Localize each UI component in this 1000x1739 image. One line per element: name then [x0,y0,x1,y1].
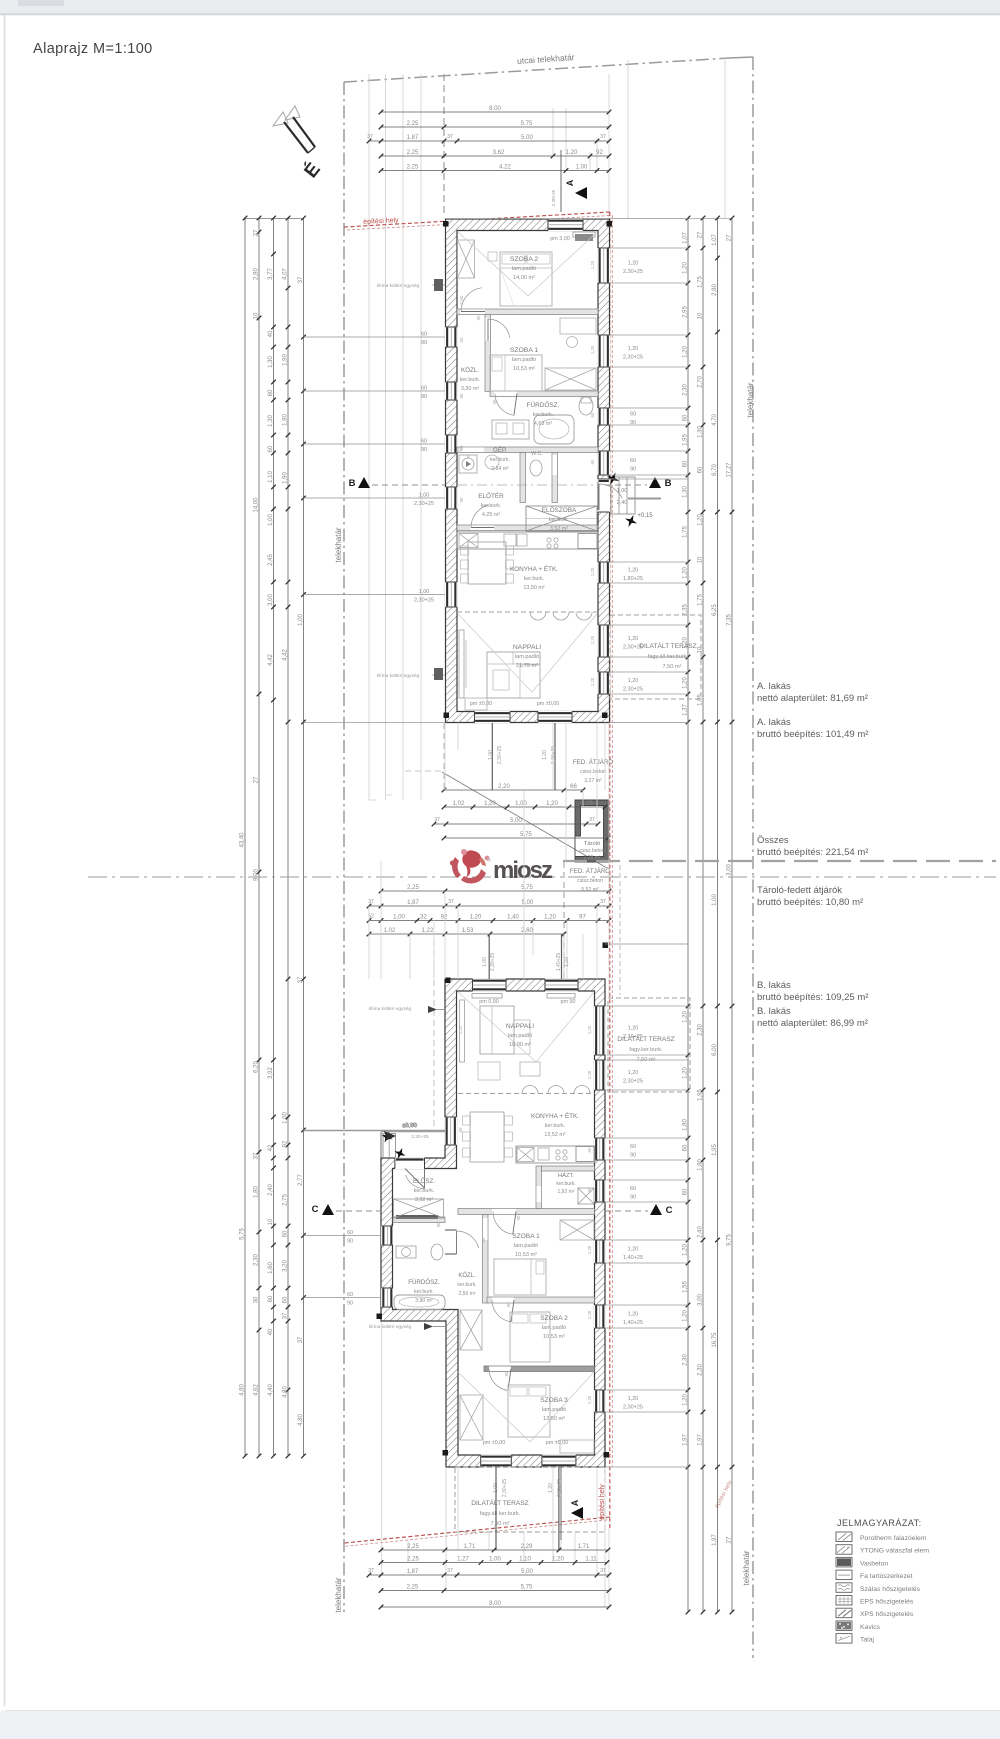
svg-text:1,20: 1,20 [628,1070,639,1076]
svg-text:2,30+25: 2,30+25 [623,355,643,361]
svg-text:90: 90 [516,1215,521,1220]
svg-text:37: 37 [600,134,606,140]
svg-text:3,20: 3,20 [283,1260,289,1272]
svg-text:92: 92 [441,915,448,921]
svg-text:A. lakás: A. lakás [757,681,791,692]
svg-text:klíma kültéri egység: klíma kültéri egység [369,1006,412,1012]
svg-text:2,30+25: 2,30+25 [623,1034,643,1040]
svg-text:2,60: 2,60 [521,928,533,934]
svg-text:Alaprajz M=1:100: Alaprajz M=1:100 [33,41,153,57]
svg-text:nettó alapterület: 86,99 m²: nettó alapterület: 86,99 m² [757,1018,868,1029]
svg-text:1,20: 1,20 [590,260,595,269]
svg-text:90: 90 [421,447,427,453]
svg-text:2,30+25: 2,30+25 [551,746,557,764]
svg-text:10: 10 [268,1218,274,1225]
svg-text:lam.padló: lam.padló [512,357,536,363]
svg-text:2,30+25: 2,30+25 [623,269,643,275]
svg-text:60: 60 [283,1230,289,1237]
svg-text:90: 90 [347,1239,353,1245]
svg-text:®: ® [487,857,491,864]
svg-text:1,00: 1,00 [393,915,405,921]
svg-text:2,29: 2,29 [521,1544,533,1550]
svg-text:1,30: 1,30 [268,415,274,427]
svg-text:37: 37 [298,276,304,283]
svg-text:2,30: 2,30 [698,1364,704,1376]
svg-text:lam.padló: lam.padló [542,1325,566,1331]
svg-text:7,50 m²: 7,50 m² [491,1521,510,1527]
svg-text:27: 27 [698,231,704,238]
svg-text:4,80: 4,80 [240,1384,246,1396]
svg-text:5,75: 5,75 [520,832,532,838]
svg-text:1,20: 1,20 [683,1244,689,1256]
svg-text:Vasbeton: Vasbeton [860,1560,888,1567]
svg-text:1,20: 1,20 [628,261,639,267]
svg-text:2.25: 2.25 [407,150,419,156]
svg-text:10: 10 [698,556,704,563]
svg-text:SZOBA 1: SZOBA 1 [510,347,539,354]
svg-text:1,20: 1,20 [544,915,556,921]
svg-text:1,20: 1,20 [587,1395,592,1404]
svg-text:1,10: 1,10 [268,471,274,483]
svg-text:1,71: 1,71 [578,1544,590,1550]
svg-text:5.75: 5.75 [521,121,533,127]
svg-text:1,20: 1,20 [564,957,570,967]
svg-text:37: 37 [600,899,606,905]
svg-text:4,70: 4,70 [712,414,718,426]
svg-text:37: 37 [283,1312,289,1319]
svg-text:1,20: 1,20 [628,1247,639,1253]
svg-text:60: 60 [683,1188,689,1195]
svg-text:lam.padló: lam.padló [514,1243,538,1249]
svg-text:ker.burk.: ker.burk. [460,377,481,383]
svg-text:60: 60 [268,1295,274,1302]
svg-text:37: 37 [447,134,453,140]
svg-text:14,00 m²: 14,00 m² [513,275,535,281]
svg-text:1,20: 1,20 [590,567,595,576]
svg-text:60: 60 [347,1292,353,1298]
svg-text:DILATÁLT TERASZ: DILATÁLT TERASZ [471,1498,528,1507]
svg-text:18,00 m²: 18,00 m² [509,1042,531,1048]
svg-text:1,20: 1,20 [628,1026,639,1032]
svg-text:60: 60 [630,412,636,418]
svg-text:2,30+25: 2,30+25 [502,1479,508,1497]
svg-text:60: 60 [268,445,274,452]
svg-text:1,00: 1,00 [488,750,494,760]
svg-text:1,75: 1,75 [683,526,689,538]
svg-text:7,35: 7,35 [727,614,733,626]
svg-text:FED. ÁTJÁRÓ: FED. ÁTJÁRÓ [573,759,613,766]
svg-text:1,20: 1,20 [587,1310,592,1319]
svg-text:KONYHA + ÉTK.: KONYHA + ÉTK. [531,1111,579,1120]
svg-text:1,20: 1,20 [470,915,482,921]
svg-text:C: C [666,1205,673,1216]
svg-text:2.25: 2.25 [407,165,419,171]
svg-text:1,30: 1,30 [683,486,689,498]
svg-text:4,42: 4,42 [283,649,289,661]
svg-text:60: 60 [283,1296,289,1303]
svg-text:B: B [665,478,672,489]
svg-text:telekhatár: telekhatár [746,382,755,417]
svg-text:27: 27 [727,1536,733,1543]
svg-text:Szálas hőszigetelés: Szálas hőszigetelés [860,1586,921,1593]
svg-text:W.C.: W.C. [531,451,543,457]
svg-text:4,80: 4,80 [298,1414,304,1426]
svg-text:miosz: miosz [493,857,553,884]
svg-text:1,95: 1,95 [683,434,689,446]
svg-text:1,80: 1,80 [254,1186,260,1198]
svg-text:pm 0,90: pm 0,90 [479,999,498,1005]
svg-text:60: 60 [268,389,274,396]
svg-text:1,00: 1,00 [489,1557,501,1563]
svg-text:1,07: 1,07 [683,232,689,244]
svg-text:1,40+25: 1,40+25 [556,953,562,971]
svg-text:1,95: 1,95 [712,1144,718,1156]
svg-text:13,50 m²: 13,50 m² [543,1416,565,1422]
svg-text:2,40: 2,40 [268,1184,274,1196]
svg-text:32: 32 [420,915,427,921]
svg-text:ker.burk.: ker.burk. [414,1188,435,1194]
svg-text:Talaj: Talaj [860,1637,874,1644]
svg-text:pm 3,00: pm 3,00 [550,236,569,242]
svg-text:1,20: 1,20 [628,568,639,574]
svg-text:1,00: 1,00 [268,514,274,526]
svg-text:60: 60 [590,459,595,464]
svg-text:6,25: 6,25 [712,604,718,616]
svg-text:2,30+25: 2,30+25 [623,1405,643,1411]
svg-text:KONYHA + ÉTK.: KONYHA + ÉTK. [510,564,558,573]
svg-text:2,30+25: 2,30+25 [623,1079,643,1085]
svg-text:B. lakás: B. lakás [757,1006,791,1017]
svg-text:KÖZL.: KÖZL. [458,1272,476,1279]
svg-text:21,75 m²: 21,75 m² [516,663,538,669]
svg-text:40: 40 [268,330,274,337]
svg-text:Porotherm falazóelem: Porotherm falazóelem [860,1535,927,1542]
svg-text:90: 90 [481,1237,486,1242]
svg-text:nettó alapterület: 81,69 m²: nettó alapterület: 81,69 m² [757,693,868,704]
svg-text:lam.padló: lam.padló [512,266,536,272]
svg-text:5,00: 5,00 [510,818,522,824]
svg-text:A. lakás: A. lakás [757,717,791,728]
svg-text:5,75: 5,75 [521,885,533,891]
svg-text:60: 60 [421,332,427,338]
svg-text:Tároló-fedett átjárók: Tároló-fedett átjárók [757,885,842,896]
svg-text:2,30: 2,30 [698,1024,704,1036]
svg-text:1,02: 1,02 [453,801,465,807]
svg-text:1.00: 1.00 [576,165,588,171]
svg-text:9,75: 9,75 [727,1234,733,1246]
svg-text:klíma kültéri egység: klíma kültéri egység [377,283,420,289]
svg-text:5,00: 5,00 [522,900,534,906]
svg-text:1,00: 1,00 [482,957,488,967]
svg-text:10,53 m²: 10,53 m² [543,1334,565,1340]
svg-text:ELŐSZOBA: ELŐSZOBA [542,505,577,514]
svg-text:1,60: 1,60 [268,1262,274,1274]
svg-text:2,30: 2,30 [683,1354,689,1366]
svg-text:1,30: 1,30 [698,426,704,438]
svg-text:2,30+25: 2,30+25 [414,501,434,507]
svg-text:2,40: 2,40 [617,500,628,506]
svg-text:37: 37 [368,1568,374,1574]
svg-text:2,30+25: 2,30+25 [414,598,434,604]
svg-text:60: 60 [630,458,636,464]
svg-text:90: 90 [492,399,497,404]
svg-text:3.62: 3.62 [493,150,505,156]
svg-text:1,92 m²: 1,92 m² [558,1189,575,1195]
svg-text:1,87: 1,87 [407,900,419,906]
svg-text:1,00: 1,00 [515,801,527,807]
svg-text:37: 37 [298,976,304,983]
svg-text:1,00: 1,00 [617,488,628,494]
svg-text:1,71: 1,71 [464,1544,476,1550]
svg-text:10,53 m²: 10,53 m² [513,366,535,372]
svg-text:1,20: 1,20 [628,346,639,352]
svg-text:A: A [570,1499,580,1506]
svg-text:1,20: 1,20 [542,750,548,760]
svg-text:2,50 m²: 2,50 m² [459,1291,476,1297]
svg-text:3,30 m²: 3,30 m² [461,386,479,392]
svg-text:90: 90 [458,1127,463,1132]
svg-text:NAPPALI: NAPPALI [513,644,541,651]
svg-text:3,27 m²: 3,27 m² [584,778,602,784]
svg-text:1,27: 1,27 [457,1557,469,1563]
svg-text:90: 90 [630,1195,636,1201]
svg-text:60: 60 [630,1144,636,1150]
svg-text:90: 90 [459,393,464,398]
svg-text:YTONG válaszfal elem: YTONG válaszfal elem [860,1548,929,1555]
svg-text:13,50 m²: 13,50 m² [523,585,544,591]
svg-text:90: 90 [630,1153,636,1159]
svg-text:1,20: 1,20 [590,677,595,686]
svg-text:ker.burk.: ker.burk. [524,576,545,582]
svg-text:1,20: 1,20 [683,1011,689,1023]
svg-text:ELŐSZ.: ELŐSZ. [413,1178,435,1185]
svg-text:6,70: 6,70 [712,464,718,476]
svg-text:4,42: 4,42 [268,654,274,666]
svg-text:5,00: 5,00 [521,1569,533,1575]
svg-text:3,92: 3,92 [268,1067,274,1079]
svg-text:1,40: 1,40 [507,915,519,921]
svg-text:60: 60 [590,412,595,417]
svg-text:1,55: 1,55 [683,1281,689,1293]
svg-text:60: 60 [683,460,689,467]
svg-text:60: 60 [698,466,704,473]
svg-text:90: 90 [504,1371,509,1376]
svg-text:1,10: 1,10 [519,1557,531,1563]
svg-text:1,20: 1,20 [587,1245,592,1254]
svg-text:2,75: 2,75 [283,1194,289,1206]
svg-text:lam.padló: lam.padló [515,654,539,660]
svg-text:3,77: 3,77 [268,268,274,280]
svg-text:4,63 m²: 4,63 m² [534,421,552,427]
svg-text:1,20: 1,20 [484,801,496,807]
svg-text:60: 60 [630,1186,636,1192]
svg-text:1,20: 1,20 [458,1025,463,1034]
svg-text:ker.burk.: ker.burk. [457,1282,476,1288]
svg-text:1,80: 1,80 [698,1159,704,1171]
svg-text:FÜRDŐSZ.: FÜRDŐSZ. [408,1279,440,1286]
svg-text:1,00: 1,00 [419,493,430,499]
svg-text:ker.burk.: ker.burk. [556,1181,575,1187]
svg-text:30: 30 [254,1296,260,1303]
svg-text:1,20: 1,20 [628,678,639,684]
svg-text:90: 90 [630,420,636,426]
svg-text:5.00: 5.00 [521,135,533,141]
svg-text:ker.burk.: ker.burk. [533,412,554,418]
svg-text:2,95: 2,95 [683,306,689,318]
svg-text:4,40: 4,40 [268,1384,274,1396]
svg-text:FÜRDŐSZ.: FÜRDŐSZ. [527,400,560,409]
svg-text:60: 60 [347,1230,353,1236]
svg-text:2,25: 2,25 [407,1544,419,1550]
svg-text:1,75: 1,75 [698,594,704,606]
svg-text:27: 27 [254,776,260,783]
svg-text:1,20: 1,20 [587,1025,592,1034]
svg-text:1,20: 1,20 [546,801,558,807]
svg-text:SZOBA 3: SZOBA 3 [540,1397,568,1404]
svg-text:A: A [565,179,575,186]
svg-text:ker.burk.: ker.burk. [545,1123,566,1129]
svg-text:2,30: 2,30 [254,1254,260,1266]
svg-text:60: 60 [459,337,464,342]
svg-text:90: 90 [476,315,481,320]
svg-text:telekhatár: telekhatár [742,1550,751,1585]
svg-text:1,87: 1,87 [407,1569,419,1575]
svg-text:1,40+25: 1,40+25 [623,1320,643,1326]
svg-text:Összes: Összes [757,835,789,846]
svg-text:14,00: 14,00 [254,497,260,513]
svg-text:1,20: 1,20 [587,1070,592,1079]
svg-text:klíma kültéri egység: klíma kültéri egység [377,673,420,679]
svg-text:GÉP.: GÉP. [493,447,507,454]
svg-text:2,30: 2,30 [683,384,689,396]
svg-text:lam.padló: lam.padló [542,1407,566,1413]
svg-text:3,00: 3,00 [268,594,274,606]
svg-text:37: 37 [298,1336,304,1343]
svg-text:2,30+25: 2,30+25 [490,953,496,971]
svg-text:ker.burk.: ker.burk. [490,457,510,463]
svg-text:1,97: 1,97 [712,1534,718,1546]
svg-text:37: 37 [448,899,454,905]
svg-text:27: 27 [254,229,260,236]
svg-text:csisz.beton: csisz.beton [579,848,604,854]
svg-text:JELMAGYARÁZAT:: JELMAGYARÁZAT: [837,1518,922,1528]
svg-text:8,00: 8,00 [489,1601,501,1607]
svg-text:3,92 m²: 3,92 m² [415,1197,433,1203]
svg-text:1,00: 1,00 [419,589,430,595]
svg-text:2,25: 2,25 [407,1585,419,1591]
svg-text:1.20: 1.20 [566,150,578,156]
svg-text:1,20: 1,20 [683,677,689,689]
svg-text:2,35: 2,35 [683,604,689,616]
svg-text:1,20: 1,20 [698,514,704,526]
svg-text:1,40+25: 1,40+25 [623,1255,643,1261]
svg-text:1,80+25: 1,80+25 [623,576,643,582]
svg-text:pm 90: pm 90 [561,999,576,1005]
svg-text:telekhatár: telekhatár [334,527,343,562]
svg-text:27: 27 [727,234,733,241]
svg-text:Kavics: Kavics [860,1624,881,1631]
svg-text:9,00: 9,00 [254,869,260,881]
svg-text:SZOBA 2: SZOBA 2 [510,256,539,263]
svg-text:+0,15: +0,15 [637,513,653,519]
svg-text:2,25: 2,25 [407,885,419,891]
svg-text:3,00: 3,00 [727,864,733,876]
svg-text:37: 37 [367,134,373,140]
svg-text:10: 10 [254,312,260,319]
svg-text:EPS hőszigetelés: EPS hőszigetelés [860,1599,914,1606]
svg-text:97: 97 [579,915,586,921]
svg-text:3,90 m²: 3,90 m² [415,1298,433,1304]
svg-text:telekhatár: telekhatár [334,1577,343,1612]
svg-text:pm ±0,00: pm ±0,00 [483,1440,505,1446]
svg-text:SZOBA 2: SZOBA 2 [540,1315,568,1322]
svg-text:2,30+25: 2,30+25 [623,687,643,693]
svg-text:5,75: 5,75 [521,1585,533,1591]
svg-text:37: 37 [447,1568,453,1574]
svg-text:37: 37 [254,1152,260,1159]
svg-text:1,00: 1,00 [298,614,304,626]
svg-text:1,20: 1,20 [628,1312,639,1318]
svg-text:1.87: 1.87 [407,135,419,141]
svg-text:66: 66 [570,784,577,790]
svg-text:60: 60 [421,386,427,392]
svg-text:1,20: 1,20 [628,636,639,642]
svg-text:60: 60 [683,1144,689,1151]
svg-text:90: 90 [347,1301,353,1307]
svg-text:90: 90 [506,1302,511,1307]
svg-text:37: 37 [368,899,374,905]
svg-text:2,40: 2,40 [698,1226,704,1238]
svg-text:60: 60 [587,1147,592,1152]
svg-text:fagy.ker.burk.: fagy.ker.burk. [629,1047,663,1053]
svg-text:C: C [312,1204,319,1215]
svg-text:1,95: 1,95 [698,1089,704,1101]
svg-text:±0,00: ±0,00 [403,1124,419,1130]
svg-text:37: 37 [589,817,595,823]
svg-text:90: 90 [459,497,464,502]
svg-text:KÖZL.: KÖZL. [461,367,479,374]
svg-text:1,20: 1,20 [552,1557,564,1563]
svg-text:2,25: 2,25 [407,1557,419,1563]
svg-text:1,00: 1,00 [283,1112,289,1124]
svg-text:90: 90 [630,467,636,473]
svg-text:Tároló: Tároló [584,841,600,847]
svg-text:bruttó beépítés: 109,25 m²: bruttó beépítés: 109,25 m² [757,992,868,1003]
svg-text:1,20: 1,20 [590,345,595,354]
svg-text:6,00: 6,00 [712,1044,718,1056]
svg-text:pm ±0,00: pm ±0,00 [546,1440,568,1446]
svg-text:B. lakás: B. lakás [757,980,791,991]
svg-text:bruttó beépítés: 10,80 m²: bruttó beépítés: 10,80 m² [757,897,863,908]
svg-text:1,90: 1,90 [283,354,289,366]
svg-text:ELŐTÉR: ELŐTÉR [478,491,504,500]
svg-text:2,30+25: 2,30+25 [411,1134,429,1140]
svg-text:5,52 m²: 5,52 m² [581,887,599,893]
svg-text:3,52 m²: 3,52 m² [550,526,568,532]
svg-text:40: 40 [268,1328,274,1335]
svg-text:90: 90 [421,394,427,400]
svg-text:2,70: 2,70 [698,376,704,388]
svg-text:2,45: 2,45 [268,554,274,566]
svg-text:ker.burk.: ker.burk. [549,517,570,523]
svg-text:1,20: 1,20 [590,635,595,644]
svg-text:bruttó beépítés: 101,49 m²: bruttó beépítés: 101,49 m² [757,729,868,740]
svg-text:klíma kültéri egység: klíma kültéri egység [369,1324,412,1330]
svg-text:2,30+25: 2,30+25 [557,1479,563,1497]
svg-text:4,25 m²: 4,25 m² [482,512,500,518]
svg-text:pm ±0,00: pm ±0,00 [537,701,559,707]
svg-text:16,75: 16,75 [712,1332,718,1348]
